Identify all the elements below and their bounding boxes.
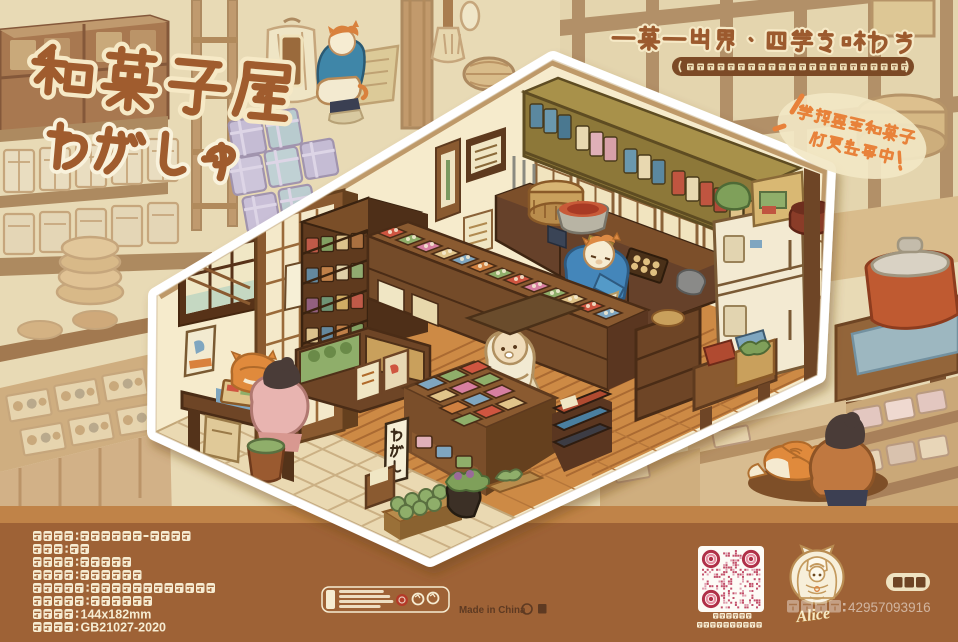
svg-text:42957093916: 42957093916 xyxy=(848,600,931,615)
svg-text:Made in China: Made in China xyxy=(459,605,526,616)
svg-text:144x182mm: 144x182mm xyxy=(81,608,152,622)
svg-text:GB21027-2020: GB21027-2020 xyxy=(81,621,167,635)
